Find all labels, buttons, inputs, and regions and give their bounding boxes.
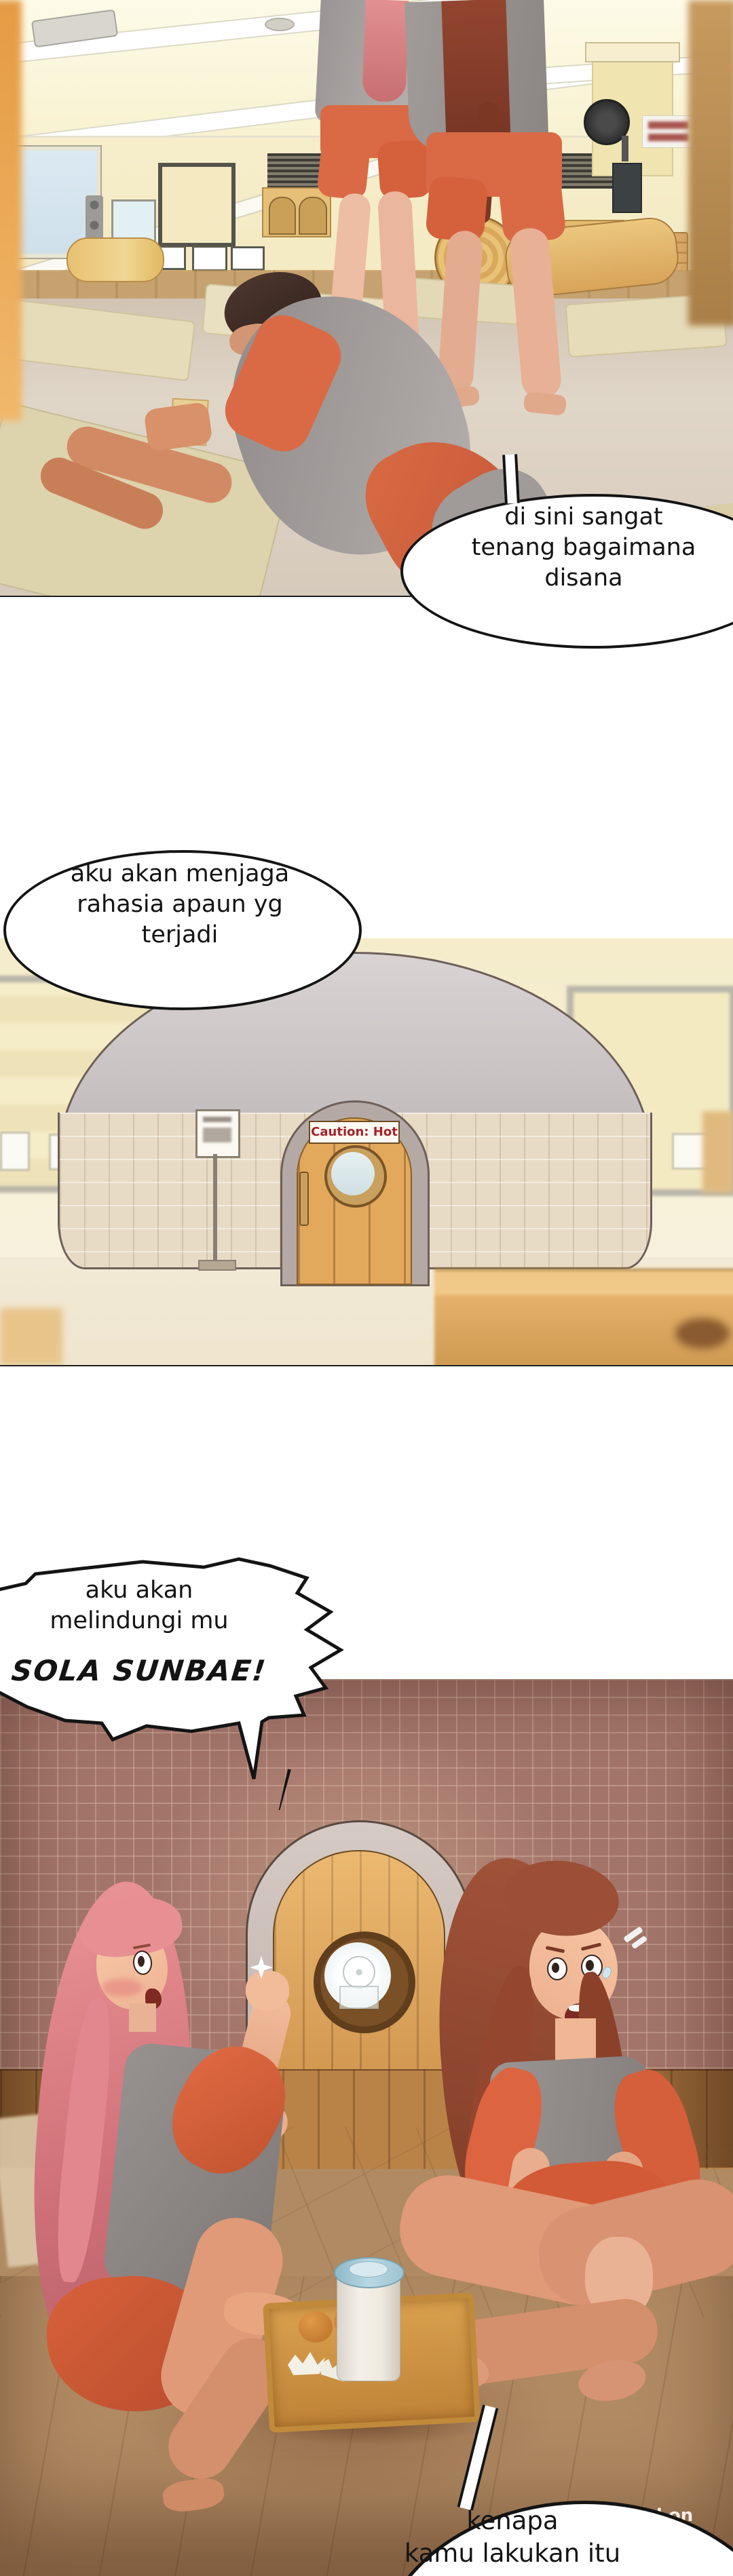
speech-line: tenang bagaimana [434, 533, 733, 563]
foreground-pillar-left [0, 0, 22, 421]
speech-line: kamu lakukan itu [394, 2537, 631, 2570]
porthole-fan-sketch [343, 1956, 375, 1988]
porthole-window-sketch [339, 1986, 379, 2009]
blurred-text-line [648, 121, 689, 129]
walking-woman-right-foot [523, 391, 567, 416]
bowl-blurred [675, 1318, 730, 1349]
comic-page: di sini sangat tenang bagaimana disana a… [0, 0, 733, 2576]
speech-line: melindungi mu [10, 1606, 268, 1636]
pink-pupil [138, 1956, 145, 1967]
caution-hot-sign-overlay: Caution: Hot [309, 1121, 400, 1144]
panel-3-kiln-room: Read on [0, 1679, 733, 2576]
walking-woman-left-shorts-leg [377, 139, 432, 199]
door-handle [299, 1172, 309, 1226]
wall-small-frame [192, 246, 227, 271]
wood-box-blurred [0, 1308, 62, 1365]
speech-line: kenapa [394, 2505, 631, 2537]
brown-pupil [552, 1963, 559, 1973]
info-stand-pole [213, 1154, 217, 1261]
speech-line: terjadi [20, 920, 339, 950]
blurred-text-line [203, 1128, 231, 1142]
log-pillow [67, 237, 164, 282]
shout-line: SOLA SUNBAE! [9, 1655, 270, 1686]
door-porthole-glass [331, 1152, 375, 1195]
cubby-arch [269, 197, 296, 235]
wall-tv [612, 163, 642, 213]
speech-bubble-1-text: di sini sangat tenang bagaimana disana [434, 502, 733, 594]
speech-bubble-4-text: kenapa kamu lakukan itu [394, 2505, 631, 2570]
blurred-text-line [203, 1117, 231, 1122]
speech-line: aku akan [10, 1575, 268, 1606]
wall-picture-frame [158, 163, 236, 247]
speech-line: aku akan menjaga [20, 859, 339, 889]
pink-fist [246, 1971, 289, 2010]
wall-small-frame [231, 246, 265, 271]
brown-pupil [586, 1960, 594, 1971]
info-stand-base [198, 1260, 236, 1271]
walking-woman-left-shorts-leg [316, 141, 371, 200]
small-window [0, 1132, 30, 1171]
shout-bubble-text: aku akan melindungi mu SOLA SUNBAE! [10, 1575, 268, 1686]
cubby-arch [299, 197, 327, 235]
lying-man-hand [143, 402, 213, 453]
ceiling-light [265, 18, 295, 31]
baked-egg [299, 2311, 333, 2343]
speech-bubble-1-tail [502, 454, 520, 503]
info-stand-sign [195, 1109, 240, 1158]
drink-can-lid-inner [349, 2261, 388, 2277]
wood-shelf-right-blurred [702, 1111, 733, 1193]
speech-bubble-2-text: aku akan menjaga rahasia apaun yg terjad… [20, 859, 339, 950]
fan-mount-arm [622, 136, 628, 161]
pink-neck [129, 2003, 156, 2032]
wood-bench-blurred [434, 1269, 733, 1366]
brown-chest [555, 2018, 596, 2062]
walking-woman-left-hair [362, 0, 409, 102]
column-cornice [585, 42, 680, 62]
speech-line: rahasia apaun yg [20, 889, 339, 920]
speech-line: disana [434, 563, 733, 594]
speech-line: di sini sangat [434, 502, 733, 533]
pink-blush [102, 1979, 143, 1997]
foreground-pillar-right [688, 0, 733, 326]
wood-cubby-shelf [262, 187, 331, 237]
blurred-text-line [648, 134, 689, 141]
